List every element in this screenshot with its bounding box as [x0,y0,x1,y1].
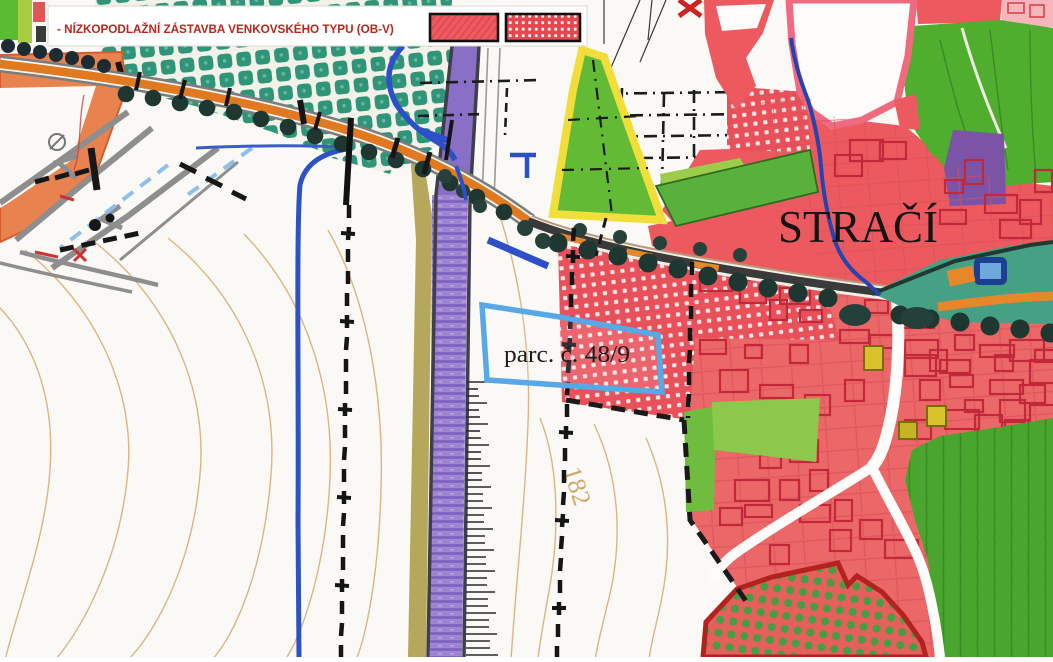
svg-text:- NÍZKOPODLAŽNÍ ZÁSTAVBA VENKO: - NÍZKOPODLAŽNÍ ZÁSTAVBA VENKOVSKÉHO TYP… [57,23,394,36]
svg-text:parc. č. 48/9: parc. č. 48/9 [504,342,630,368]
svg-text:STRAČÍ: STRAČÍ [778,201,938,252]
